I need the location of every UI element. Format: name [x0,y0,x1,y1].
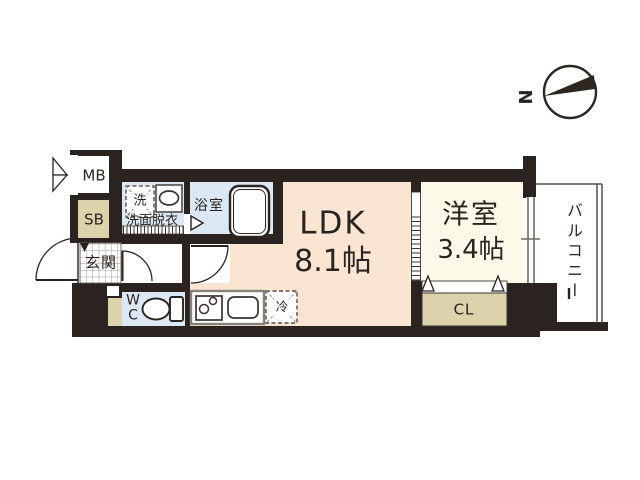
bath-door-gap [184,214,190,234]
north-compass-icon [544,66,596,118]
entry-storage [108,298,122,326]
vanity-sink-icon [156,185,182,212]
ldk-name-label: LDK [299,209,366,240]
meter-box-label: MB [82,169,105,184]
balcony-window-icon [521,197,540,283]
bedroom-name-label: 洋室 [442,202,500,229]
shoe-box-label: SB [84,213,104,228]
entrance-label: 玄関 [85,256,117,271]
ldk-size-label: 8.1帖 [294,247,372,277]
closet-label: CL [454,303,475,318]
front-door-icon [36,238,78,280]
compass-needle [544,75,595,96]
ldk-door-icon [190,244,230,283]
balcony-label: バルコニー [565,202,581,302]
mb-door-swing-icon [53,158,67,191]
sink-icon [228,297,258,318]
toilet-icon [143,297,184,321]
bedroom-size-label: 3.4帖 [437,237,504,263]
kitchen-icon [191,291,264,324]
sliding-door-icon [412,192,421,281]
mb-door-gap [68,155,78,195]
bedroom-floor [422,180,523,283]
washer-label: 洗 [133,195,146,208]
floorplan-page: MB SB 玄関 洗 洗面脱衣 浴室 W C 冷 LDK 8.1帖 洋室 3.4… [0,0,640,480]
washroom-label: 洗面脱衣 [126,215,178,228]
bath-label: 浴室 [194,199,224,213]
wall-niche [107,286,119,296]
hall-door-icon [122,251,152,281]
wc-label: W C [126,293,140,322]
refrigerator-label: 冷 [276,301,289,314]
bathtub-icon [230,186,269,237]
north-label: N [518,89,536,104]
